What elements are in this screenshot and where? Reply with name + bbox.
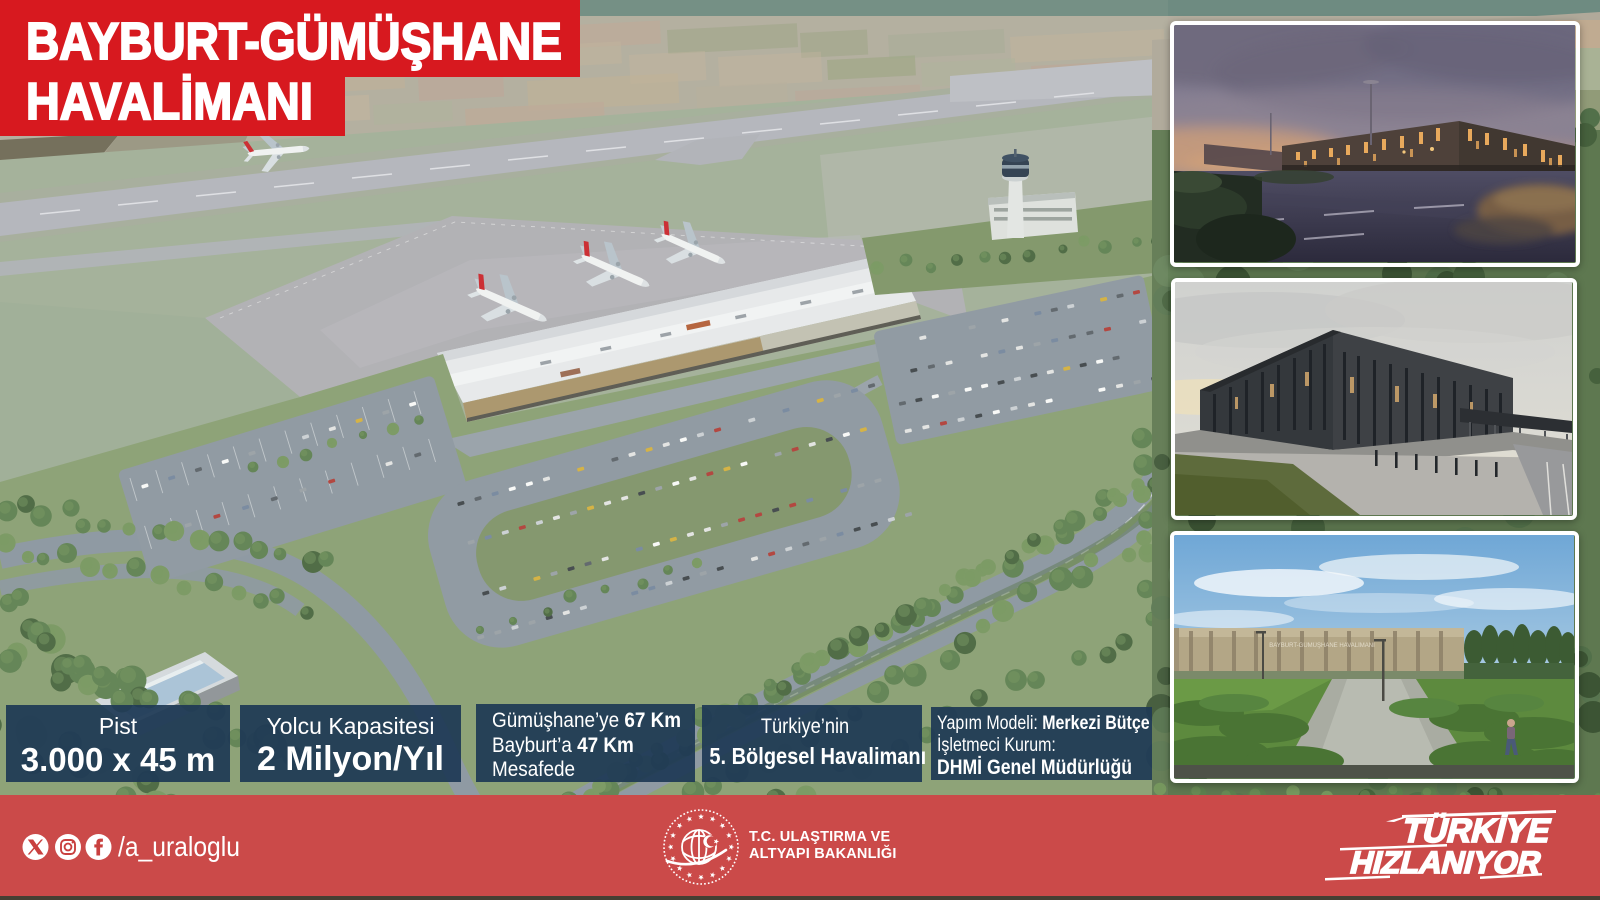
svg-text:BAYBURT-GÜMÜŞHANE HAVALİMANI: BAYBURT-GÜMÜŞHANE HAVALİMANI [1269,642,1375,649]
svg-text:TÜRKİYE: TÜRKİYE [1399,812,1555,849]
